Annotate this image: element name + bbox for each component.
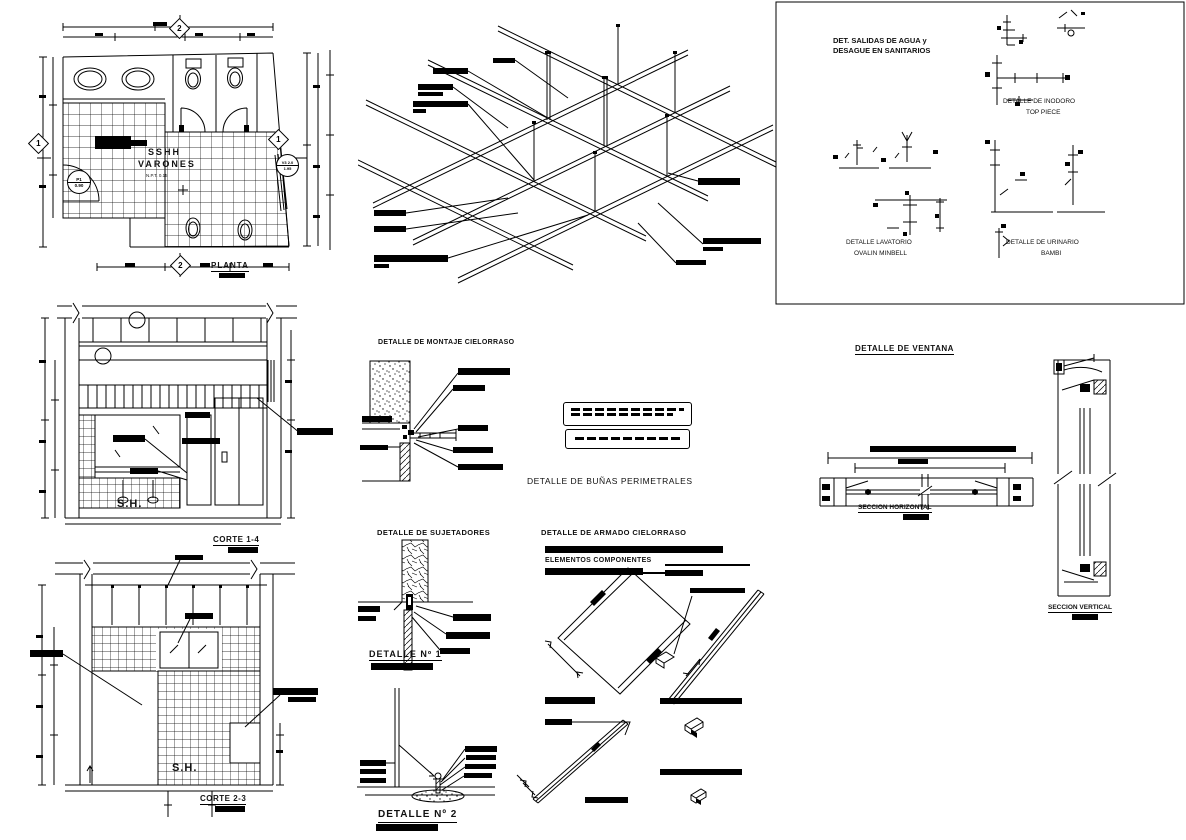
ceiling-mounting-detail-drawing (358, 333, 523, 488)
seccion-vertical-label: SECCION VERTICAL (1048, 604, 1112, 613)
sujetadores-title: DETALLE DE SUJETADORES (377, 529, 490, 538)
plan-title: PLANTA (211, 261, 249, 272)
inodoro-label-2: TOP PIECE (1026, 109, 1060, 116)
plan-scale-bar (219, 273, 245, 278)
corte-2-3-room-label: S.H. (172, 762, 197, 775)
corte-1-4-title: CORTE 1-4 (213, 535, 259, 546)
inodoro-label-1: DETALLE DE INODORO (1003, 98, 1075, 105)
sanitary-panel-title-2: DESAGUE EN SANITARIOS (833, 47, 930, 56)
cad-sheet: SSHH VARONES N.P.T. 0.15 PLANTA 2 2 1 1 … (0, 0, 1186, 840)
elementos-label: ELEMENTOS COMPONENTES (545, 557, 652, 565)
corte-1-4-room-label: S.H. (117, 498, 142, 511)
plan-floor-level: N.P.T. 0.15 (146, 173, 168, 178)
urinario-label-1: DETALLE DE URINARIO (1006, 239, 1079, 246)
seccion-vertical-scale-bar (1072, 614, 1098, 620)
detalle-2-label: DETALLE Nº 2 (378, 809, 457, 823)
lavatorio-label-2: OVALIN MINBELL (854, 250, 907, 257)
plan-door-tag: P10.90 (67, 170, 91, 194)
detalle-1-scale-bar (371, 663, 433, 670)
corte-2-3-scale-bar (215, 806, 245, 812)
detalle-1-label: DETALLE Nº 1 (369, 649, 442, 661)
section-corte-2-3-drawing (30, 555, 335, 837)
ceiling-isometric-drawing (358, 8, 778, 300)
spec-note-box-1 (563, 402, 692, 426)
section-corte-1-4-drawing (35, 300, 335, 562)
urinario-label-2: BAMBI (1041, 250, 1061, 257)
armado-title: DETALLE DE ARMADO CIELORRASO (541, 529, 686, 538)
spec-note-box-2 (565, 429, 690, 449)
plan-window-tag: V3 2.01.95 (276, 154, 299, 177)
ventana-title: DETALLE DE VENTANA (855, 344, 954, 355)
lavatorio-label-1: DETALLE LAVATORIO (846, 239, 912, 246)
window-detail-drawing (810, 338, 1186, 630)
sanitary-panel-title-1: DET. SALIDAS DE AGUA y (833, 37, 927, 46)
ceiling-assembly-detail-drawing (540, 518, 775, 710)
seccion-horizontal-label: SECCION HORIZONTAL (858, 504, 932, 513)
corte-2-3-title: CORTE 2-3 (200, 794, 246, 805)
detalle-2-scale-bar (376, 824, 438, 831)
corte-1-4-scale-bar (228, 547, 258, 553)
montaje-title: DETALLE DE MONTAJE CIELORRASO (378, 339, 514, 347)
seccion-horizontal-scale-bar (903, 514, 929, 520)
bunas-title: DETALLE DE BUÑAS PERIMETRALES (527, 477, 693, 487)
plan-room-name-1: SSHH (148, 147, 181, 157)
plan-room-name-2: VARONES (138, 159, 196, 169)
